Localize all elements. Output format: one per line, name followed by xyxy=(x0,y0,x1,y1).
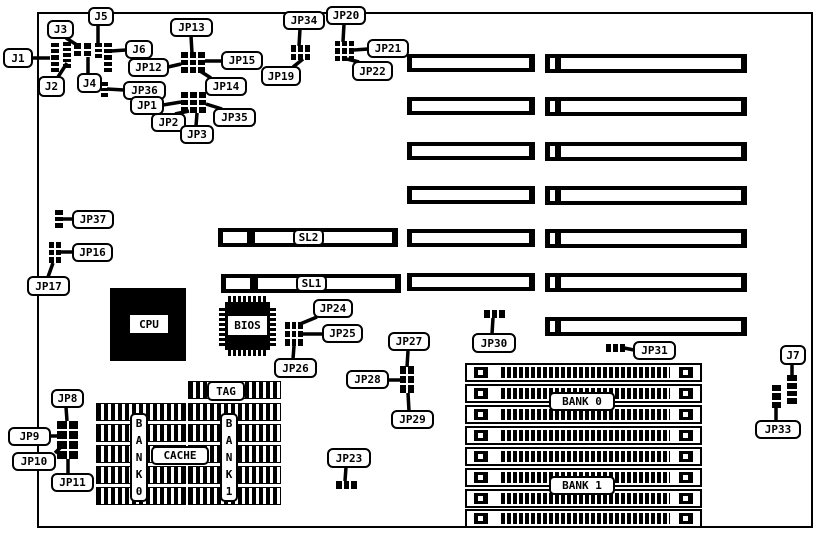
callout-jp24: JP24 xyxy=(313,299,353,318)
callout-jp29: JP29 xyxy=(391,410,434,429)
pin-pad xyxy=(55,210,63,215)
pin-pad xyxy=(181,67,188,73)
pin-pad xyxy=(298,54,303,61)
pin-pad xyxy=(408,385,414,393)
pin-pad xyxy=(63,64,71,68)
pin-pad xyxy=(305,54,310,61)
leader-lines-layer xyxy=(0,0,821,536)
label-cache: CACHE xyxy=(151,446,209,465)
callout-jp33: JP33 xyxy=(755,420,801,439)
pin-pad xyxy=(69,451,79,459)
pin-pad xyxy=(63,59,71,63)
callout-jp14: JP14 xyxy=(205,77,247,96)
pin-pad xyxy=(57,451,67,459)
pin-pad xyxy=(772,393,781,399)
pin-pad xyxy=(298,45,303,52)
pin-pad xyxy=(63,42,71,46)
pin-pad xyxy=(787,375,797,381)
jumper-block-jp19-34 xyxy=(291,45,310,60)
pin-pad xyxy=(101,82,108,86)
pin-pad xyxy=(57,441,67,449)
leader-line-jp30 xyxy=(492,318,493,334)
callout-jp13: JP13 xyxy=(170,18,213,37)
leader-line-jp13 xyxy=(191,36,192,53)
pin-pad xyxy=(408,376,414,384)
pin-pad xyxy=(292,322,297,329)
callout-jp27: JP27 xyxy=(388,332,430,351)
pin-pad xyxy=(51,55,59,59)
jumper-block-j5 xyxy=(95,43,102,58)
jumper-block-jp33 xyxy=(772,385,781,408)
pin-pad xyxy=(69,431,79,439)
pin-pad xyxy=(400,385,406,393)
jumper-block-jp23 xyxy=(336,481,357,489)
callout-j2: J2 xyxy=(38,76,65,97)
callout-jp16: JP16 xyxy=(72,243,113,262)
callout-jp37: JP37 xyxy=(72,210,114,229)
jumper-block-jp1-2-3-35 xyxy=(181,92,206,113)
label-sl2: SL2 xyxy=(293,229,324,246)
pin-pad xyxy=(335,41,340,46)
callout-jp30: JP30 xyxy=(472,333,516,353)
pin-pad xyxy=(492,310,498,318)
pin-pad xyxy=(190,52,197,58)
callout-jp9: JP9 xyxy=(8,427,51,446)
callout-jp17: JP17 xyxy=(27,276,70,296)
callout-j6: J6 xyxy=(125,40,153,59)
pin-pad xyxy=(104,62,112,66)
jumper-block-jp8-9-10-11 xyxy=(57,421,78,459)
pin-pad xyxy=(285,339,290,346)
callout-jp34: JP34 xyxy=(283,11,325,30)
label-bank1-vertical: B A N K 1 xyxy=(220,413,238,502)
jumper-block-j4 xyxy=(84,43,91,56)
pin-pad xyxy=(104,68,112,72)
callout-jp31: JP31 xyxy=(633,341,676,360)
jumper-block-jp24-25-26 xyxy=(285,322,303,346)
callout-jp12: JP12 xyxy=(128,58,169,77)
pin-pad xyxy=(51,43,59,47)
label-sl1: SL1 xyxy=(296,275,327,292)
callout-jp19: JP19 xyxy=(261,66,301,86)
pin-pad xyxy=(291,45,296,52)
pin-pad xyxy=(190,60,197,66)
pin-pad xyxy=(181,60,188,66)
callout-jp23: JP23 xyxy=(327,448,371,468)
leader-line-jp27 xyxy=(407,351,408,367)
callout-jp20: JP20 xyxy=(326,6,366,25)
callout-j5: J5 xyxy=(88,7,114,26)
pin-pad xyxy=(198,52,205,58)
leader-line-jp23 xyxy=(345,467,346,481)
pin-pad xyxy=(199,107,206,113)
pin-pad xyxy=(335,48,340,53)
pin-pad xyxy=(198,60,205,66)
pin-pad xyxy=(74,51,81,57)
pin-pad xyxy=(51,62,59,66)
leader-line-jp29 xyxy=(408,393,409,411)
pin-pad xyxy=(55,217,63,222)
callout-jp3: JP3 xyxy=(180,125,214,144)
pin-pad xyxy=(342,48,347,53)
leader-line-jp20 xyxy=(343,24,344,42)
pin-pad xyxy=(787,383,797,389)
diagram-canvas: J1J2J3J4J5J6JP12JP13JP15JP14JP19JP34JP20… xyxy=(0,0,821,536)
pin-pad xyxy=(199,100,206,106)
pin-pad xyxy=(84,43,91,49)
jumper-block-j3 xyxy=(74,43,81,56)
jumper-block-jp16-17 xyxy=(49,242,61,263)
pin-pad xyxy=(787,398,797,404)
label-bank0: BANK 0 xyxy=(549,392,615,411)
pin-pad xyxy=(298,322,303,329)
pin-pad xyxy=(101,93,108,97)
callout-jp26: JP26 xyxy=(274,358,317,378)
pin-pad xyxy=(51,49,59,53)
callout-j7: J7 xyxy=(780,345,806,365)
jumper-block-jp37 xyxy=(55,210,63,228)
leader-line-jp36 xyxy=(107,89,124,90)
jumper-block-j1 xyxy=(51,43,59,72)
pin-pad xyxy=(49,257,54,263)
label-cpu: CPU xyxy=(130,315,168,333)
pin-pad xyxy=(606,344,611,352)
jumper-block-jp27-28-29 xyxy=(400,366,414,393)
pin-pad xyxy=(56,242,61,248)
jumper-block-jp36 xyxy=(101,82,108,97)
pin-pad xyxy=(57,431,67,439)
pin-pad xyxy=(285,322,290,329)
pin-pad xyxy=(49,242,54,248)
jumper-block-jp12-13-14-15 xyxy=(181,52,205,73)
callout-jp10: JP10 xyxy=(12,452,56,471)
pin-pad xyxy=(198,67,205,73)
callout-jp25: JP25 xyxy=(322,324,363,343)
pin-pad xyxy=(84,51,91,57)
callout-jp35: JP35 xyxy=(213,108,256,127)
pin-pad xyxy=(69,421,79,429)
label-bank1: BANK 1 xyxy=(549,476,615,495)
callout-jp21: JP21 xyxy=(367,39,409,58)
callout-j4: J4 xyxy=(77,73,102,93)
pin-pad xyxy=(400,376,406,384)
pin-pad xyxy=(104,55,112,59)
pin-pad xyxy=(285,331,290,338)
pin-pad xyxy=(95,54,102,58)
callout-jp22: JP22 xyxy=(352,61,393,81)
pin-pad xyxy=(190,100,197,106)
pin-pad xyxy=(349,48,354,53)
pin-pad xyxy=(351,481,357,489)
pin-pad xyxy=(335,56,340,61)
jumper-block-jp20-21-22 xyxy=(335,41,354,61)
label-bank0-vertical: B A N K 0 xyxy=(130,413,148,502)
pin-pad xyxy=(56,257,61,263)
pin-pad xyxy=(342,56,347,61)
pin-pad xyxy=(69,441,79,449)
callout-j1: J1 xyxy=(3,48,33,68)
pin-pad xyxy=(181,52,188,58)
callout-j3: J3 xyxy=(47,20,74,39)
pin-pad xyxy=(74,43,81,49)
pin-pad xyxy=(408,366,414,374)
callout-jp11: JP11 xyxy=(51,473,94,492)
pin-pad xyxy=(400,366,406,374)
pin-pad xyxy=(63,53,71,57)
pin-pad xyxy=(772,385,781,391)
label-tag: TAG xyxy=(207,381,245,401)
pin-pad xyxy=(291,54,296,61)
pin-pad xyxy=(484,310,490,318)
pin-pad xyxy=(55,223,63,228)
pin-pad xyxy=(181,107,188,113)
pin-pad xyxy=(190,92,197,98)
pin-pad xyxy=(190,107,197,113)
leader-line-jp34 xyxy=(299,29,300,46)
pin-pad xyxy=(95,49,102,53)
callout-jp15: JP15 xyxy=(221,51,263,70)
pin-pad xyxy=(298,331,303,338)
pin-pad xyxy=(298,339,303,346)
pin-pad xyxy=(499,310,505,318)
pin-pad xyxy=(613,344,618,352)
jumper-block-jp31 xyxy=(606,344,625,352)
pin-pad xyxy=(349,56,354,61)
pin-pad xyxy=(305,45,310,52)
callout-jp8: JP8 xyxy=(51,389,84,408)
pin-pad xyxy=(787,391,797,397)
pin-pad xyxy=(181,92,188,98)
pin-pad xyxy=(104,49,112,53)
pin-pad xyxy=(190,67,197,73)
jumper-block-j2 xyxy=(63,42,71,68)
pin-pad xyxy=(57,421,67,429)
jumper-block-jp30 xyxy=(484,310,505,318)
jumper-block-j6 xyxy=(104,43,112,72)
pin-pad xyxy=(342,41,347,46)
pin-pad xyxy=(63,48,71,52)
pin-pad xyxy=(772,402,781,408)
pin-pad xyxy=(292,339,297,346)
pin-pad xyxy=(344,481,350,489)
label-bios: BIOS xyxy=(228,316,267,335)
callout-jp28: JP28 xyxy=(346,370,389,389)
pin-pad xyxy=(95,43,102,47)
pin-pad xyxy=(181,100,188,106)
pin-pad xyxy=(51,68,59,72)
pin-pad xyxy=(104,43,112,47)
leader-line-jp17 xyxy=(48,263,53,277)
leader-line-jp8 xyxy=(66,407,67,421)
jumper-block-j7 xyxy=(787,375,797,404)
leader-line-jp21 xyxy=(354,49,368,50)
pin-pad xyxy=(292,331,297,338)
leader-line-jp12 xyxy=(168,64,181,67)
pin-pad xyxy=(56,250,61,256)
pin-pad xyxy=(336,481,342,489)
leader-line-j6 xyxy=(111,50,126,51)
pin-pad xyxy=(101,88,108,92)
pin-pad xyxy=(49,250,54,256)
leader-line-jp1 xyxy=(163,102,181,105)
pin-pad xyxy=(620,344,625,352)
pin-pad xyxy=(349,41,354,46)
